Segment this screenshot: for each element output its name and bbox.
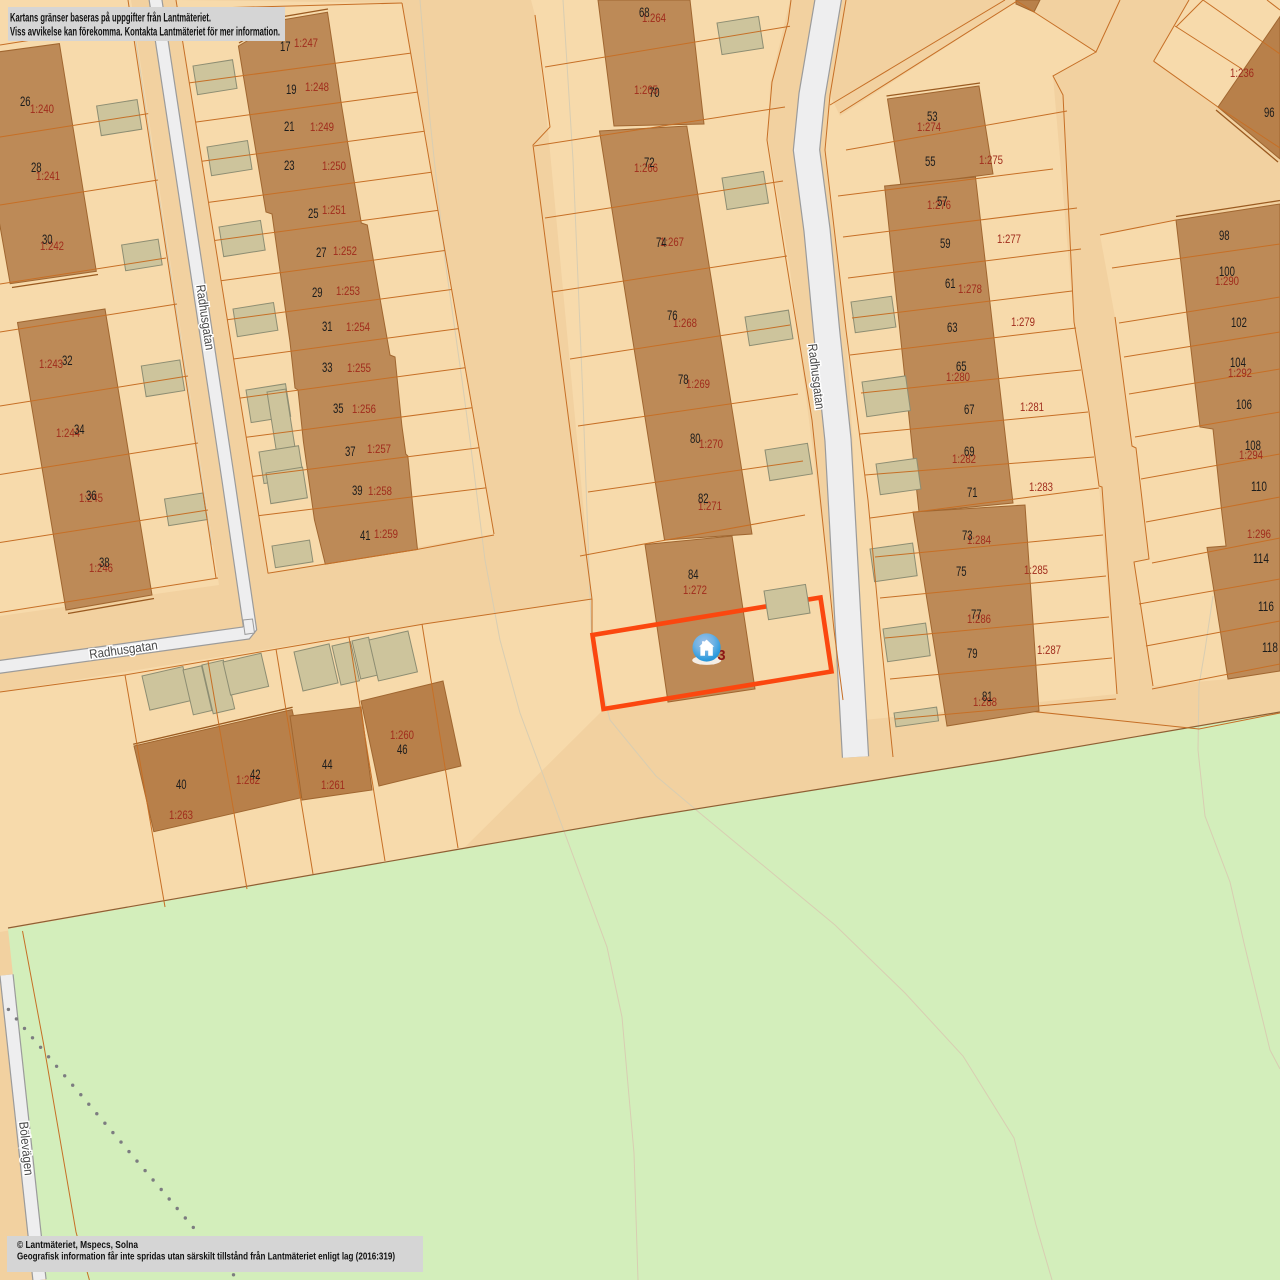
svg-text:1:261: 1:261 bbox=[321, 778, 345, 792]
svg-text:1:285: 1:285 bbox=[1024, 563, 1048, 577]
svg-text:68: 68 bbox=[639, 5, 650, 20]
svg-text:37: 37 bbox=[345, 444, 356, 459]
svg-text:1:269: 1:269 bbox=[686, 377, 710, 391]
svg-text:40: 40 bbox=[176, 777, 187, 792]
svg-text:70: 70 bbox=[649, 85, 660, 100]
svg-text:1:263: 1:263 bbox=[169, 808, 193, 822]
svg-text:1:249: 1:249 bbox=[310, 120, 334, 134]
svg-text:96: 96 bbox=[1264, 105, 1275, 120]
svg-text:35: 35 bbox=[333, 401, 344, 416]
svg-text:73: 73 bbox=[962, 528, 973, 543]
svg-text:21: 21 bbox=[284, 119, 295, 134]
svg-text:106: 106 bbox=[1236, 397, 1252, 412]
svg-text:69: 69 bbox=[964, 444, 975, 459]
svg-text:1:252: 1:252 bbox=[333, 244, 357, 258]
svg-text:1:259: 1:259 bbox=[374, 527, 398, 541]
svg-text:75: 75 bbox=[956, 564, 967, 579]
svg-text:1:243: 1:243 bbox=[39, 357, 63, 371]
svg-text:82: 82 bbox=[698, 491, 709, 506]
svg-text:1:256: 1:256 bbox=[352, 402, 376, 416]
svg-text:42: 42 bbox=[250, 767, 261, 782]
svg-text:61: 61 bbox=[945, 276, 956, 291]
svg-text:© Lantmäteriet, Mspecs, Solna: © Lantmäteriet, Mspecs, Solna bbox=[17, 1239, 138, 1251]
svg-text:77: 77 bbox=[971, 607, 982, 622]
svg-text:27: 27 bbox=[316, 245, 327, 260]
svg-text:57: 57 bbox=[937, 194, 948, 209]
svg-text:1:278: 1:278 bbox=[958, 282, 982, 296]
svg-text:38: 38 bbox=[99, 555, 110, 570]
svg-text:67: 67 bbox=[964, 402, 975, 417]
svg-text:59: 59 bbox=[940, 236, 951, 251]
svg-text:46: 46 bbox=[397, 742, 408, 757]
svg-text:1:236: 1:236 bbox=[1230, 66, 1254, 80]
svg-text:1:275: 1:275 bbox=[979, 153, 1003, 167]
svg-text:84: 84 bbox=[688, 567, 699, 582]
svg-text:104: 104 bbox=[1230, 355, 1246, 370]
svg-text:29: 29 bbox=[312, 285, 323, 300]
svg-text:1:258: 1:258 bbox=[368, 484, 392, 498]
svg-text:98: 98 bbox=[1219, 228, 1230, 243]
svg-text:1:260: 1:260 bbox=[390, 728, 414, 742]
svg-text:1:281: 1:281 bbox=[1020, 400, 1044, 414]
svg-text:1:248: 1:248 bbox=[305, 80, 329, 94]
svg-text:1:250: 1:250 bbox=[322, 159, 346, 173]
svg-text:36: 36 bbox=[86, 488, 97, 503]
svg-text:1:270: 1:270 bbox=[699, 437, 723, 451]
svg-text:116: 116 bbox=[1258, 599, 1274, 614]
svg-text:30: 30 bbox=[42, 232, 53, 247]
svg-text:65: 65 bbox=[956, 359, 967, 374]
svg-text:118: 118 bbox=[1262, 640, 1278, 655]
svg-text:55: 55 bbox=[925, 154, 936, 169]
svg-text:25: 25 bbox=[308, 206, 319, 221]
svg-text:1:296: 1:296 bbox=[1247, 527, 1271, 541]
svg-text:102: 102 bbox=[1231, 315, 1247, 330]
svg-text:79: 79 bbox=[967, 646, 978, 661]
svg-text:1:253: 1:253 bbox=[336, 284, 360, 298]
svg-text:33: 33 bbox=[322, 360, 333, 375]
svg-text:100: 100 bbox=[1219, 264, 1235, 279]
svg-text:63: 63 bbox=[947, 320, 958, 335]
svg-text:1:240: 1:240 bbox=[30, 102, 54, 116]
svg-text:34: 34 bbox=[74, 422, 85, 437]
svg-text:1:287: 1:287 bbox=[1037, 643, 1061, 657]
svg-text:1:247: 1:247 bbox=[294, 36, 318, 50]
svg-text:Viss avvikelse kan förekomma.: Viss avvikelse kan förekomma. Kontakta L… bbox=[10, 27, 280, 39]
svg-text:80: 80 bbox=[690, 431, 701, 446]
svg-text:19: 19 bbox=[286, 82, 297, 97]
svg-text:81: 81 bbox=[982, 689, 993, 704]
svg-text:23: 23 bbox=[284, 158, 295, 173]
svg-text:32: 32 bbox=[62, 353, 73, 368]
svg-text:Geografisk information får int: Geografisk information får inte spridas … bbox=[17, 1251, 395, 1263]
svg-text:1:283: 1:283 bbox=[1029, 480, 1053, 494]
svg-text:110: 110 bbox=[1251, 479, 1267, 494]
svg-text:1:254: 1:254 bbox=[346, 320, 370, 334]
svg-text:76: 76 bbox=[667, 308, 678, 323]
svg-text:28: 28 bbox=[31, 160, 42, 175]
svg-text:108: 108 bbox=[1245, 438, 1261, 453]
svg-text:17: 17 bbox=[280, 39, 291, 54]
svg-text:Kartans gränser baseras på upp: Kartans gränser baseras på uppgifter frå… bbox=[10, 13, 211, 25]
svg-text:78: 78 bbox=[678, 372, 689, 387]
svg-text:72: 72 bbox=[644, 155, 655, 170]
svg-text:1:251: 1:251 bbox=[322, 203, 346, 217]
svg-text:31: 31 bbox=[322, 319, 333, 334]
svg-text:1:255: 1:255 bbox=[347, 361, 371, 375]
svg-text:114: 114 bbox=[1253, 551, 1269, 566]
svg-text:41: 41 bbox=[360, 528, 371, 543]
svg-text:1:277: 1:277 bbox=[997, 232, 1021, 246]
svg-text:53: 53 bbox=[927, 109, 938, 124]
svg-text:74: 74 bbox=[656, 235, 667, 250]
svg-text:26: 26 bbox=[20, 94, 31, 109]
svg-text:39: 39 bbox=[352, 483, 363, 498]
svg-text:1:257: 1:257 bbox=[367, 442, 391, 456]
svg-text:71: 71 bbox=[967, 485, 978, 500]
svg-text:1:272: 1:272 bbox=[683, 583, 707, 597]
svg-text:1:279: 1:279 bbox=[1011, 315, 1035, 329]
svg-text:44: 44 bbox=[322, 757, 333, 772]
